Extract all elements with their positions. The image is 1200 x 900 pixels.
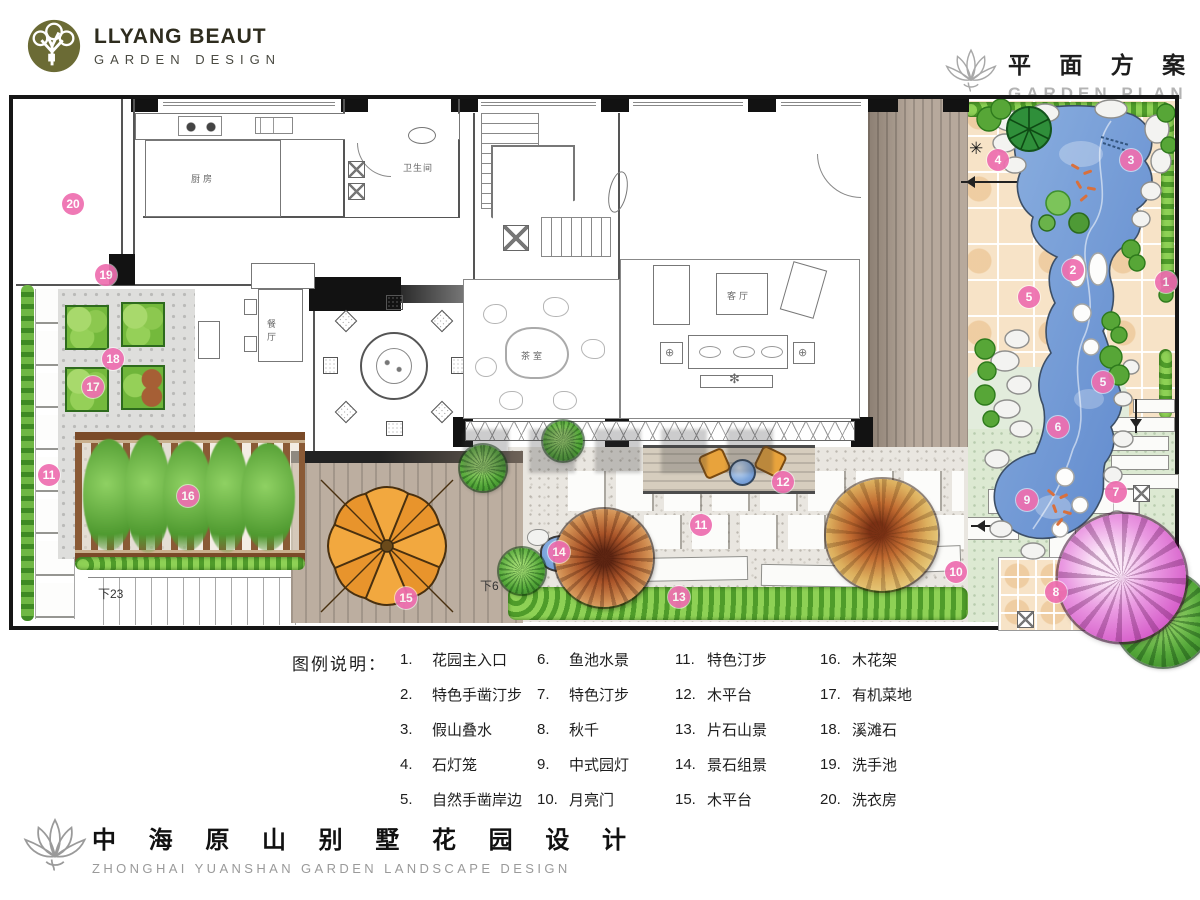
legend-item: 13.片石山景 <box>675 712 818 747</box>
legend-item-label: 有机菜地 <box>852 684 912 705</box>
legend-column-1: 1.花园主入口2.特色手凿汀步3.假山叠水4.石灯笼5.自然手凿岸边 <box>400 642 535 817</box>
legend-item-number: 18. <box>820 721 852 738</box>
legend-item-number: 12. <box>675 686 707 703</box>
legend-item-number: 17. <box>820 686 852 703</box>
project-title-en: ZHONGHAI YUANSHAN GARDEN LANDSCAPE DESIG… <box>92 861 639 876</box>
legend-item-label: 石灯笼 <box>432 754 477 775</box>
legend-item-label: 自然手凿岸边 <box>432 789 522 810</box>
plan-marker-11: 11 <box>690 514 712 536</box>
legend-item: 6.鱼池水景 <box>537 642 673 677</box>
plan-marker-16: 16 <box>177 485 199 507</box>
plan-marker-10: 10 <box>945 561 967 583</box>
legend-item: 3.假山叠水 <box>400 712 535 747</box>
legend-item: 7.特色汀步 <box>537 677 673 712</box>
plan-marker-7: 7 <box>1105 481 1127 503</box>
legend-item-number: 13. <box>675 721 707 738</box>
legend-item-number: 9. <box>537 756 569 773</box>
plan-marker-9: 9 <box>1016 489 1038 511</box>
legend-item-label: 木平台 <box>707 789 752 810</box>
plan-markers: 2019181711161514131112697108432155 <box>13 99 1175 626</box>
legend-item: 1.花园主入口 <box>400 642 535 677</box>
plan-marker-4: 4 <box>987 149 1009 171</box>
project-title-cn: 中 海 原 山 别 墅 花 园 设 计 <box>92 820 639 855</box>
legend-column-3: 11.特色汀步12.木平台13.片石山景14.景石组景15.木平台 <box>675 642 818 817</box>
project-title: 中 海 原 山 别 墅 花 园 设 计 ZHONGHAI YUANSHAN GA… <box>92 820 639 876</box>
legend: 图例说明： 1.花园主入口2.特色手凿汀步3.假山叠水4.石灯笼5.自然手凿岸边… <box>292 642 1172 820</box>
lotus-icon <box>944 42 998 96</box>
legend-item-label: 特色汀步 <box>569 684 629 705</box>
legend-item-label: 洗衣房 <box>852 789 897 810</box>
legend-item-label: 木花架 <box>852 649 897 670</box>
legend-title: 图例说明： <box>292 650 387 675</box>
legend-item: 9.中式园灯 <box>537 747 673 782</box>
legend-item: 16.木花架 <box>820 642 970 677</box>
legend-item: 12.木平台 <box>675 677 818 712</box>
plan-marker-14: 14 <box>548 541 570 563</box>
legend-item-number: 10. <box>537 791 569 808</box>
legend-item-number: 2. <box>400 686 432 703</box>
plan-marker-11: 11 <box>38 464 60 486</box>
legend-item-label: 特色手凿汀步 <box>432 684 522 705</box>
legend-item-label: 溪滩石 <box>852 719 897 740</box>
legend-item-number: 19. <box>820 756 852 773</box>
legend-columns: 1.花园主入口2.特色手凿汀步3.假山叠水4.石灯笼5.自然手凿岸边6.鱼池水景… <box>400 642 1172 820</box>
legend-item-label: 木平台 <box>707 684 752 705</box>
plan-marker-2: 2 <box>1062 259 1084 281</box>
plan-marker-3: 3 <box>1120 149 1142 171</box>
legend-item-label: 洗手池 <box>852 754 897 775</box>
legend-column-2: 6.鱼池水景7.特色汀步8.秋千9.中式园灯10.月亮门 <box>537 642 673 817</box>
company-name: LLYANG BEAUT GARDEN DESIGN <box>94 25 281 67</box>
legend-item-label: 月亮门 <box>569 789 614 810</box>
legend-item-number: 14. <box>675 756 707 773</box>
legend-item-number: 5. <box>400 791 432 808</box>
legend-item: 8.秋千 <box>537 712 673 747</box>
legend-item: 10.月亮门 <box>537 782 673 817</box>
legend-item: 15.木平台 <box>675 782 818 817</box>
legend-column-4: 16.木花架17.有机菜地18.溪滩石19.洗手池20.洗衣房 <box>820 642 970 817</box>
legend-item: 5.自然手凿岸边 <box>400 782 535 817</box>
legend-item-number: 8. <box>537 721 569 738</box>
legend-item-number: 20. <box>820 791 852 808</box>
plan-marker-20: 20 <box>62 193 84 215</box>
plan-marker-5: 5 <box>1018 286 1040 308</box>
plan-marker-13: 13 <box>668 586 690 608</box>
legend-item-number: 3. <box>400 721 432 738</box>
legend-item-number: 15. <box>675 791 707 808</box>
legend-item: 18.溪滩石 <box>820 712 970 747</box>
plan-marker-17: 17 <box>82 376 104 398</box>
garden-plan-drawing: ✳ 厨房 卫生间 餐厅 <box>9 95 1179 630</box>
legend-item: 2.特色手凿汀步 <box>400 677 535 712</box>
legend-item-number: 7. <box>537 686 569 703</box>
plan-marker-18: 18 <box>102 348 124 370</box>
legend-item-number: 6. <box>537 651 569 668</box>
legend-item-number: 1. <box>400 651 432 668</box>
legend-item: 17.有机菜地 <box>820 677 970 712</box>
legend-item-number: 16. <box>820 651 852 668</box>
legend-item: 20.洗衣房 <box>820 782 970 817</box>
plan-marker-1: 1 <box>1155 271 1177 293</box>
legend-item-label: 秋千 <box>569 719 599 740</box>
plan-marker-12: 12 <box>772 471 794 493</box>
lotus-icon-footer <box>22 810 88 876</box>
legend-item-label: 中式园灯 <box>569 754 629 775</box>
legend-item-label: 鱼池水景 <box>569 649 629 670</box>
logo-title: LLYANG BEAUT <box>94 25 281 49</box>
legend-item-number: 4. <box>400 756 432 773</box>
legend-item-label: 花园主入口 <box>432 649 507 670</box>
legend-item: 14.景石组景 <box>675 747 818 782</box>
plan-marker-15: 15 <box>395 587 417 609</box>
legend-item-label: 景石组景 <box>707 754 767 775</box>
plan-marker-5: 5 <box>1092 371 1114 393</box>
company-tree-logo-icon <box>25 17 83 75</box>
plan-marker-19: 19 <box>95 264 117 286</box>
legend-item: 11.特色汀步 <box>675 642 818 677</box>
legend-item-label: 假山叠水 <box>432 719 492 740</box>
legend-item: 19.洗手池 <box>820 747 970 782</box>
plan-marker-8: 8 <box>1045 581 1067 603</box>
sheet-title-cn: 平 面 方 案 <box>1008 46 1196 80</box>
logo-subtitle: GARDEN DESIGN <box>94 52 281 67</box>
legend-item-label: 特色汀步 <box>707 649 767 670</box>
legend-item-number: 11. <box>675 651 707 668</box>
legend-item-label: 片石山景 <box>707 719 767 740</box>
legend-item: 4.石灯笼 <box>400 747 535 782</box>
plan-marker-6: 6 <box>1047 416 1069 438</box>
